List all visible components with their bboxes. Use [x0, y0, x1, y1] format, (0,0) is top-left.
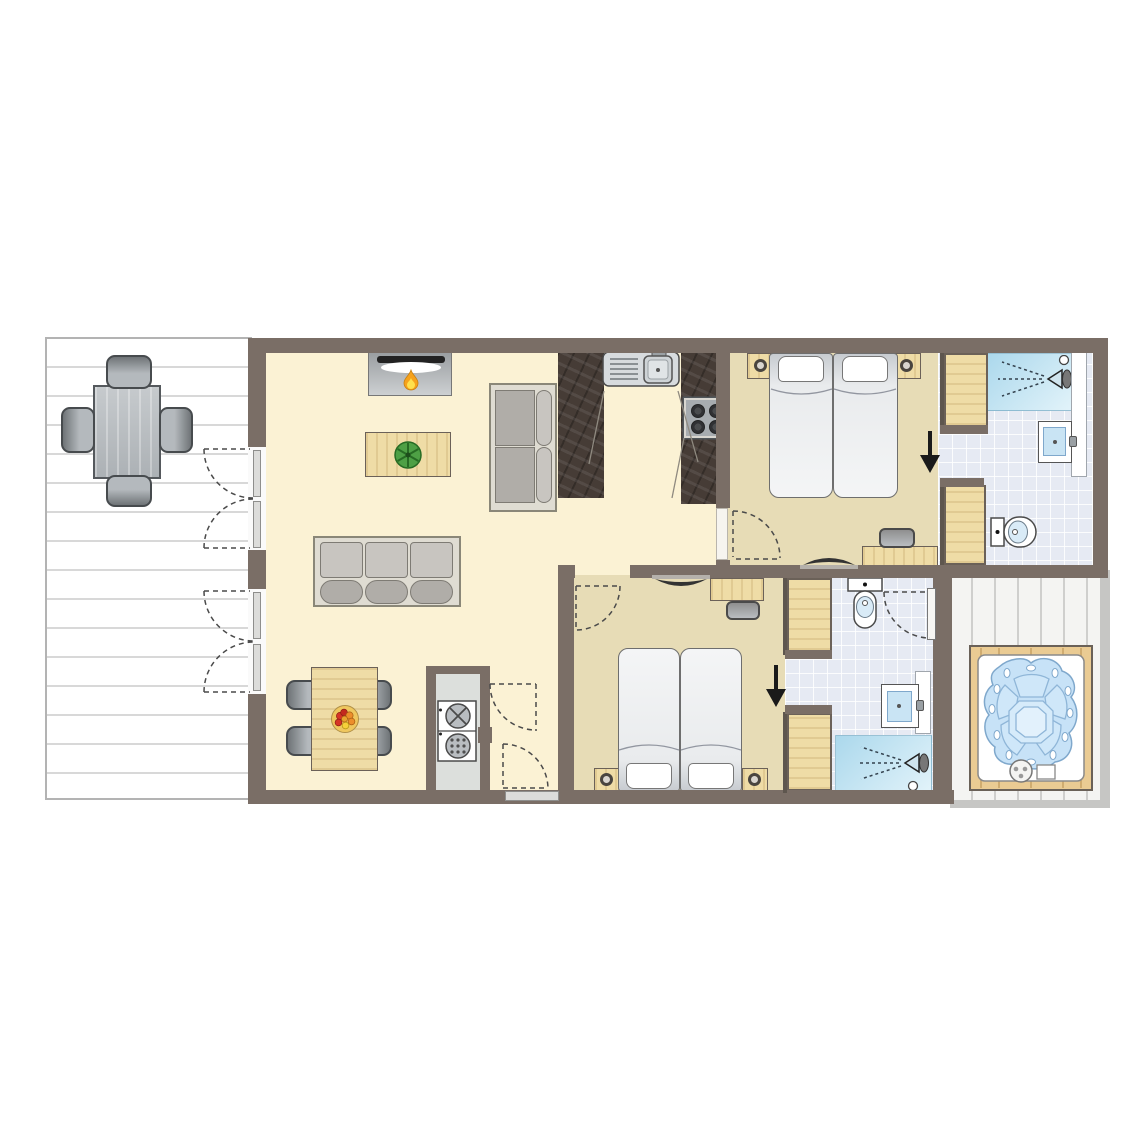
cabinet-lines [589, 391, 698, 498]
floor-plan [0, 0, 1145, 1145]
tv-icon [652, 558, 858, 586]
annotation-overlay [0, 0, 1145, 1145]
door-swing-arcs [204, 449, 930, 789]
blanket-fold-lines [619, 389, 896, 750]
